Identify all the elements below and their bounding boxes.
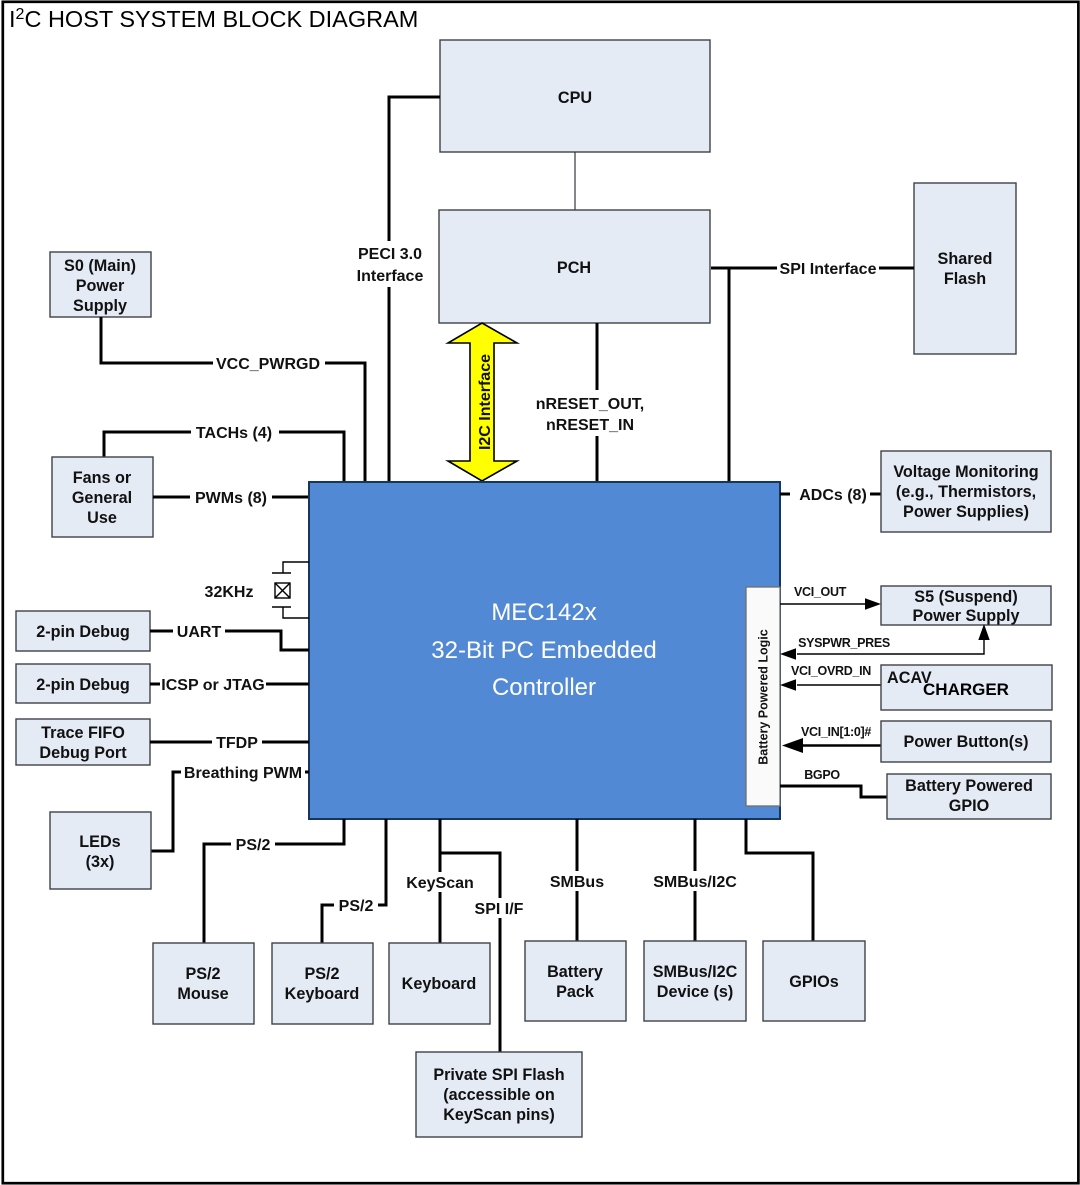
svg-text:Power: Power: [76, 277, 125, 295]
svg-text:MEC142x: MEC142x: [491, 599, 596, 626]
svg-text:(e.g., Thermistors,: (e.g., Thermistors,: [896, 483, 1036, 501]
svg-text:Supply: Supply: [73, 297, 127, 315]
svg-text:2-pin Debug: 2-pin Debug: [36, 676, 130, 694]
svg-text:nRESET_OUT,: nRESET_OUT,: [536, 396, 644, 413]
svg-text:TFDP: TFDP: [216, 735, 258, 752]
svg-text:Battery Powered Logic: Battery Powered Logic: [757, 629, 771, 764]
svg-text:Mouse: Mouse: [177, 985, 228, 1003]
svg-text:S5 (Suspend): S5 (Suspend): [914, 588, 1017, 606]
svg-text:SMBus/I2C: SMBus/I2C: [653, 963, 738, 981]
svg-text:PS/2: PS/2: [304, 965, 339, 983]
svg-text:Trace FIFO: Trace FIFO: [41, 724, 125, 742]
svg-text:Use: Use: [87, 509, 117, 527]
svg-text:UART: UART: [177, 624, 222, 641]
svg-text:Private SPI Flash: Private SPI Flash: [433, 1066, 564, 1084]
svg-text:GPIOs: GPIOs: [789, 973, 838, 991]
svg-text:Power Supplies): Power Supplies): [903, 503, 1029, 521]
svg-text:VCI_OUT: VCI_OUT: [794, 585, 847, 599]
svg-text:ICSP or JTAG: ICSP or JTAG: [161, 677, 264, 694]
svg-text:Debug Port: Debug Port: [39, 744, 127, 762]
svg-text:KeyScan pins): KeyScan pins): [443, 1106, 555, 1124]
svg-text:GPIO: GPIO: [949, 797, 989, 815]
svg-text:Power Button(s): Power Button(s): [904, 733, 1029, 751]
svg-text:S0 (Main): S0 (Main): [64, 257, 136, 275]
svg-text:I2C Interface: I2C Interface: [477, 354, 494, 450]
svg-text:I2C HOST SYSTEM BLOCK DIAGRAM: I2C HOST SYSTEM BLOCK DIAGRAM: [9, 6, 418, 32]
svg-text:Controller: Controller: [492, 674, 596, 701]
svg-text:32KHz: 32KHz: [205, 584, 254, 601]
svg-text:(3x): (3x): [86, 853, 115, 871]
svg-text:CHARGER: CHARGER: [923, 680, 1009, 699]
svg-text:VCI_IN[1:0]#: VCI_IN[1:0]#: [801, 725, 871, 739]
svg-text:nRESET_IN: nRESET_IN: [546, 417, 634, 434]
svg-text:2-pin Debug: 2-pin Debug: [36, 623, 130, 641]
svg-text:Interface: Interface: [357, 268, 424, 285]
svg-text:Fans or: Fans or: [73, 469, 132, 487]
svg-text:ADCs (8): ADCs (8): [799, 487, 867, 504]
svg-text:PCH: PCH: [557, 259, 591, 277]
svg-text:PWMs (8): PWMs (8): [195, 490, 267, 507]
svg-text:PECI 3.0: PECI 3.0: [358, 246, 422, 263]
svg-text:TACHs (4): TACHs (4): [196, 425, 272, 442]
svg-text:SPI I/F: SPI I/F: [475, 901, 524, 918]
svg-text:Flash: Flash: [944, 270, 986, 288]
svg-text:Breathing PWM: Breathing PWM: [184, 765, 302, 782]
svg-text:Keyboard: Keyboard: [285, 985, 360, 1003]
svg-text:Battery Powered: Battery Powered: [905, 777, 1033, 795]
svg-text:Device (s): Device (s): [657, 983, 733, 1001]
svg-text:VCC_PWRGD: VCC_PWRGD: [216, 356, 320, 373]
svg-text:Pack: Pack: [556, 983, 595, 1001]
svg-text:Keyboard: Keyboard: [402, 975, 477, 993]
svg-text:Power Supply: Power Supply: [912, 607, 1019, 625]
svg-text:Battery: Battery: [547, 963, 603, 981]
svg-text:General: General: [72, 489, 132, 507]
svg-text:Shared: Shared: [938, 250, 993, 268]
svg-text:SMBus/I2C: SMBus/I2C: [653, 874, 737, 891]
svg-text:SYSPWR_PRES: SYSPWR_PRES: [798, 636, 890, 650]
svg-text:PS/2: PS/2: [236, 837, 271, 854]
svg-text:(accessible on: (accessible on: [443, 1086, 555, 1104]
svg-text:BGPO: BGPO: [804, 768, 840, 782]
svg-text:32-Bit PC Embedded: 32-Bit PC Embedded: [431, 637, 656, 664]
svg-text:VCI_OVRD_IN: VCI_OVRD_IN: [791, 664, 871, 678]
svg-text:CPU: CPU: [558, 89, 592, 107]
svg-text:KeyScan: KeyScan: [406, 875, 474, 892]
svg-text:LEDs: LEDs: [79, 833, 120, 851]
svg-text:SMBus: SMBus: [550, 874, 604, 891]
svg-text:PS/2: PS/2: [339, 898, 374, 915]
svg-text:Voltage Monitoring: Voltage Monitoring: [893, 463, 1038, 481]
svg-text:SPI Interface: SPI Interface: [780, 261, 877, 278]
svg-text:PS/2: PS/2: [185, 965, 220, 983]
